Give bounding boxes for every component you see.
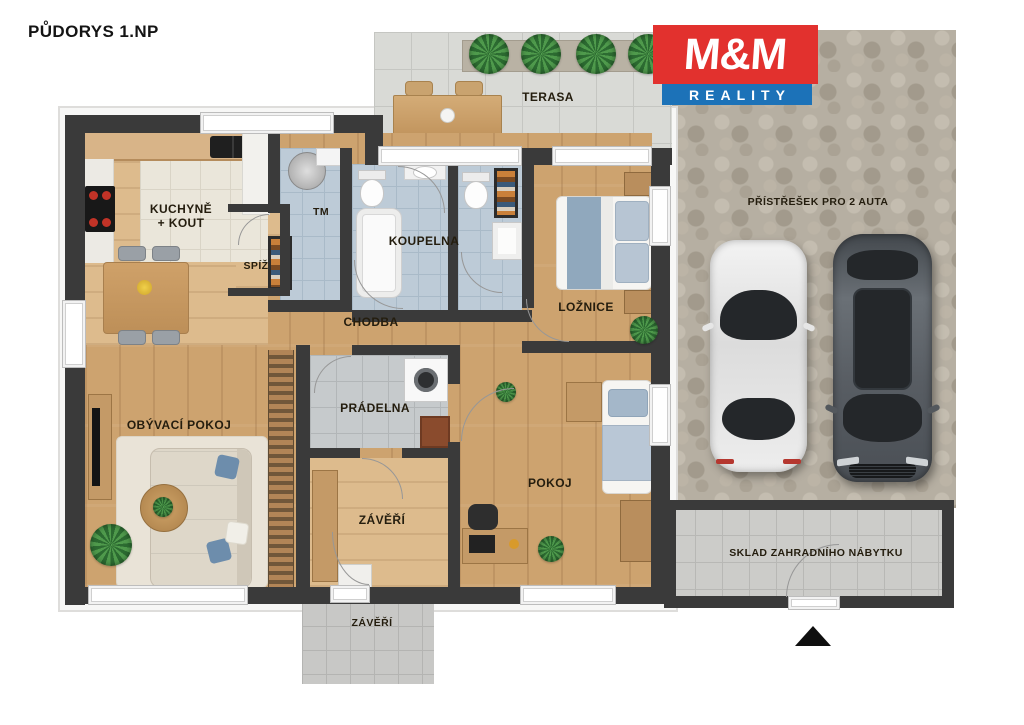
wall-segment: [296, 345, 310, 587]
wall-segment: [268, 133, 280, 213]
gray-car-grille: [849, 464, 916, 478]
sofa-pillow: [214, 454, 240, 480]
burner: [102, 218, 111, 227]
white-car-windshield: [720, 290, 797, 340]
terrace-sliding-door: [378, 146, 522, 166]
brand-logo: M&M: [653, 25, 818, 84]
terrace-chair: [405, 81, 433, 96]
window: [62, 300, 86, 368]
wall-segment: [448, 442, 460, 587]
brand-logo-top: M&M: [683, 30, 789, 80]
desk-item: [509, 539, 519, 549]
gray-car-sunroof: [853, 288, 912, 390]
wall-segment: [352, 345, 460, 355]
plant-icon: [576, 34, 616, 74]
wc-shelf: [494, 168, 518, 218]
wardrobe: [620, 500, 652, 562]
blanket: [602, 425, 652, 481]
utility-appliance: [316, 148, 342, 166]
dining-chair: [118, 330, 146, 345]
bathroom-label: KOUPELNA: [389, 234, 460, 248]
wall-segment: [340, 148, 352, 312]
burner: [89, 218, 98, 227]
white-car: [710, 240, 807, 472]
wall-segment: [942, 500, 954, 608]
plant-icon: [90, 524, 132, 566]
wall-segment: [448, 345, 460, 384]
terrace-label: TERASA: [522, 90, 574, 104]
washer-door: [414, 368, 438, 392]
window: [520, 585, 616, 605]
desk-chair: [468, 504, 498, 530]
wall-segment: [402, 448, 460, 458]
single-bed: [602, 380, 652, 494]
duvet: [567, 197, 601, 289]
white-car-taillight-right: [783, 459, 801, 464]
gray-car-rear-window: [847, 250, 918, 280]
laundry-mat: [420, 416, 450, 448]
pillow: [608, 389, 648, 417]
dining-chair: [152, 330, 180, 345]
brand-logo-bottom-bar: REALITY: [662, 84, 812, 105]
carport-label: PŘÍSTŘEŠEK PRO 2 AUTA: [748, 196, 889, 208]
white-car-rear-window: [722, 398, 795, 440]
laptop: [469, 535, 495, 553]
plant-icon: [521, 34, 561, 74]
stove: [85, 186, 115, 232]
pantry-label: SPÍŽ: [244, 260, 269, 272]
kitchen-label: KUCHYNĚ + KOUT: [150, 202, 212, 230]
sofa-pillow: [225, 521, 250, 546]
brand-logo-bottom: REALITY: [683, 87, 791, 103]
plant-icon: [538, 536, 564, 562]
room-label: POKOJ: [528, 476, 572, 490]
plant-icon: [630, 316, 658, 344]
window: [649, 384, 671, 446]
sofa-backrest: [237, 449, 251, 587]
burner: [102, 191, 111, 200]
shelf-contents: [497, 171, 515, 215]
terrace-chair: [455, 81, 483, 96]
kitchen-tall-cabinet: [242, 133, 270, 215]
gray-car: [833, 234, 932, 482]
bedside-cabinet: [566, 382, 602, 422]
duvet-fold: [601, 197, 613, 289]
pillow: [615, 201, 649, 241]
window: [552, 146, 652, 166]
floor-plan: PŮDORYS 1.NP M&M REALITY PŘÍSTŘEŠEK PRO …: [0, 0, 1024, 725]
fruit-bowl: [137, 280, 152, 295]
porch-area: [302, 602, 434, 684]
gray-car-windshield: [843, 394, 922, 442]
plant-icon: [469, 34, 509, 74]
shed-label: SKLAD ZAHRADNÍHO NÁBYTKU: [729, 547, 903, 559]
vestibule-label: ZÁVĚŘÍ: [359, 513, 405, 527]
vestibule-bench: [312, 470, 338, 582]
burner: [89, 191, 98, 200]
wall-segment: [664, 500, 954, 510]
bedroom-label: LOŽNICE: [558, 300, 613, 314]
tv: [92, 408, 100, 486]
utility-label: TM: [313, 206, 329, 218]
living-label: OBÝVACÍ POKOJ: [127, 418, 231, 432]
toilet: [464, 181, 488, 209]
page-title: PŮDORYS 1.NP: [28, 22, 159, 42]
wall-segment: [664, 596, 788, 608]
window: [88, 585, 248, 605]
window: [200, 112, 334, 134]
dining-chair: [152, 246, 180, 261]
dining-table: [103, 262, 189, 334]
washing-machine: [404, 358, 448, 402]
double-bed: [556, 196, 652, 290]
wall-segment: [296, 448, 360, 458]
wall-segment: [838, 596, 954, 608]
desk: [462, 528, 528, 564]
white-car-taillight-left: [716, 459, 734, 464]
nightstand: [624, 172, 652, 196]
entrance-door: [330, 585, 370, 603]
plant-icon: [153, 497, 173, 517]
north-arrow-icon: [795, 626, 831, 646]
dining-chair: [118, 246, 146, 261]
pillow: [615, 243, 649, 283]
nightstand: [624, 290, 652, 314]
terrace-vase: [440, 108, 455, 123]
toilet: [360, 179, 384, 207]
hallway-label: CHODBA: [343, 315, 398, 329]
window: [649, 186, 671, 246]
porch-label: ZÁVĚŘÍ: [352, 617, 393, 629]
wall-segment: [522, 148, 534, 308]
wall-segment: [280, 204, 290, 296]
wall-segment: [268, 300, 352, 312]
shed-door: [788, 596, 840, 610]
laundry-label: PRÁDELNA: [340, 401, 410, 415]
slatted-partition: [268, 350, 294, 587]
